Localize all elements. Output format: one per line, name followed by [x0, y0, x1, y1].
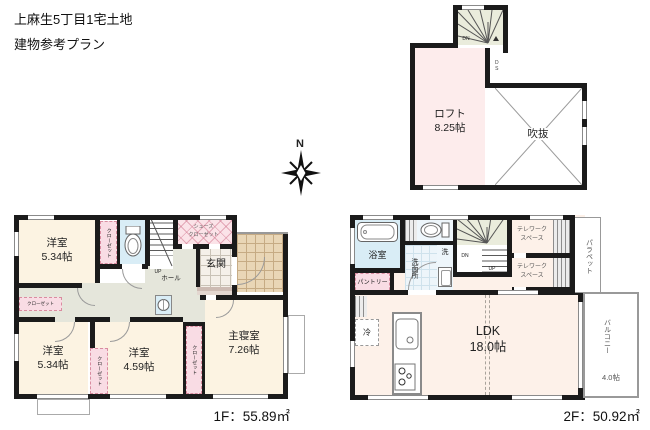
stairs-dn-label: DN	[455, 253, 475, 260]
kitchen-sink-icon	[395, 318, 419, 350]
louver-hatch	[355, 296, 367, 317]
laundry-label: 洗	[437, 248, 453, 257]
wall	[410, 43, 415, 190]
vanity-counter	[405, 218, 417, 243]
window	[14, 334, 19, 361]
wall	[200, 295, 206, 300]
bay-window	[288, 315, 305, 374]
closet: クローゼット	[186, 326, 202, 394]
parapet-label: パラペット	[581, 223, 597, 289]
stairs-up-label: UP	[482, 266, 502, 273]
wall	[410, 43, 458, 48]
window	[110, 394, 166, 399]
toilet-icon	[420, 221, 450, 239]
room-bedroom3-label: 洋室 4.59帖	[107, 347, 171, 374]
room-size: 5.34帖	[25, 251, 89, 265]
window	[582, 101, 587, 119]
wall	[117, 220, 120, 266]
room-size: 7.26帖	[211, 344, 277, 358]
bathroom-label: 浴室	[355, 250, 400, 262]
balcony-label: バルコニー	[600, 300, 614, 372]
closet: クローゼット	[100, 221, 117, 264]
shoes-closet-line2: クローゼット	[175, 231, 232, 239]
stairs-up-label: UP	[148, 269, 168, 276]
loft-plan: DN DS ロフト 8.25帖 吹抜	[410, 5, 648, 200]
telework-space2-label: テレワーク スペース	[510, 263, 554, 281]
compass-rose-icon	[281, 150, 321, 196]
hall-label: ホール	[154, 275, 188, 283]
ldk-label: LDK 18.0帖	[453, 323, 523, 356]
shoes-closet-label: シューズ クローゼット	[175, 223, 232, 239]
room-bedroom2-label: 洋室 5.34帖	[22, 345, 84, 372]
terrace-step	[37, 399, 90, 415]
window	[368, 395, 428, 400]
window	[200, 215, 226, 220]
plan-title-line1: 上麻生5丁目1宅土地	[14, 8, 132, 33]
balcony-size-label: 4.0帖	[592, 373, 630, 383]
floor1-area-label: 1F：55.89㎡	[134, 405, 290, 425]
floor1-plan: クローゼット クローゼット クローゼット クローゼット 洋室 5.34帖	[14, 215, 320, 427]
telework-desk1	[553, 220, 570, 253]
wall	[453, 215, 457, 277]
stair-winder-icon	[457, 217, 507, 245]
loft-dn-label: DN	[454, 36, 478, 43]
door-opening	[408, 290, 436, 295]
wall	[350, 268, 405, 273]
window	[582, 127, 587, 145]
room-name: 洋室	[107, 347, 171, 361]
floorplan-page: 上麻生5丁目1宅土地 建物参考プラン N	[0, 0, 650, 430]
window	[462, 5, 484, 10]
plan-title-line2: 建物参考プラン	[14, 33, 132, 58]
wall	[232, 215, 237, 257]
porch-edge-line	[237, 232, 288, 234]
sliding-door-opening	[498, 290, 538, 295]
wall	[490, 83, 587, 88]
telework-space1-label: テレワーク スペース	[510, 226, 554, 244]
telework-line2: スペース	[510, 272, 554, 281]
refrigerator-space: 冷	[355, 319, 379, 346]
refrigerator-label: 冷	[356, 328, 378, 338]
washing-machine-pan-inner	[441, 270, 451, 286]
window	[430, 215, 468, 220]
wall	[90, 322, 95, 350]
stair-direction-line	[150, 218, 173, 268]
room-size: 5.34帖	[22, 359, 84, 373]
plan-title: 上麻生5丁目1宅土地 建物参考プラン	[14, 8, 132, 57]
wall	[19, 317, 55, 322]
telework-line1: テレワーク	[510, 226, 554, 235]
bathtub-icon	[357, 222, 398, 242]
room-name: 主寝室	[211, 330, 277, 344]
wall	[405, 241, 453, 245]
window	[363, 215, 393, 220]
room-size: 4.59帖	[107, 361, 171, 375]
wall	[145, 218, 150, 266]
washing-machine-pan	[438, 267, 452, 287]
ldk-name: LDK	[453, 323, 523, 339]
window	[530, 215, 563, 220]
floor2-area-label: 2F：50.92㎡	[488, 405, 640, 425]
window	[423, 185, 458, 190]
telework-line2: スペース	[510, 235, 554, 244]
washbasin-icon	[156, 296, 171, 314]
closet: クローゼット	[90, 348, 108, 394]
wall	[390, 273, 394, 295]
void-label-text: 吹抜	[526, 128, 551, 140]
void-label: 吹抜	[510, 128, 566, 142]
wall	[453, 272, 512, 277]
wall	[19, 283, 82, 288]
door-opening	[209, 244, 220, 249]
door-opening	[514, 253, 526, 258]
floor2-plan: 冷 浴室 洗面所 洗 パントリー DN UP テレワーク スペース テレワーク	[348, 215, 650, 427]
washroom-label: 洗面所	[408, 248, 421, 288]
window	[512, 395, 562, 400]
loft-room-label: ロフト 8.25帖	[418, 108, 482, 135]
toilet-icon	[123, 226, 143, 258]
washbasin	[155, 295, 172, 315]
window	[14, 232, 19, 256]
telework-line1: テレワーク	[510, 263, 554, 272]
telework-desk2	[553, 258, 570, 287]
wall	[503, 5, 508, 53]
room-name: 洋室	[22, 345, 84, 359]
loft-room-size: 8.25帖	[418, 122, 482, 136]
shoes-closet-line1: シューズ	[175, 223, 232, 231]
pantry-label: パントリー	[355, 280, 390, 288]
closet: クローゼット	[19, 297, 62, 311]
ldk-size: 18.0帖	[453, 339, 523, 355]
room-name: 洋室	[25, 237, 89, 251]
window	[28, 215, 54, 220]
wall	[202, 322, 205, 394]
wall	[400, 220, 405, 273]
loft-room-name: ロフト	[418, 108, 482, 122]
wall	[130, 317, 183, 322]
window	[213, 394, 268, 399]
door-opening	[182, 244, 193, 249]
duct-space-label: DS	[490, 51, 503, 81]
entrance-label: 玄関	[200, 258, 232, 271]
room-master-label: 主寝室 7.26帖	[211, 330, 277, 357]
room-bedroom1-label: 洋室 5.34帖	[25, 237, 89, 264]
gas-stove-icon	[394, 363, 416, 391]
